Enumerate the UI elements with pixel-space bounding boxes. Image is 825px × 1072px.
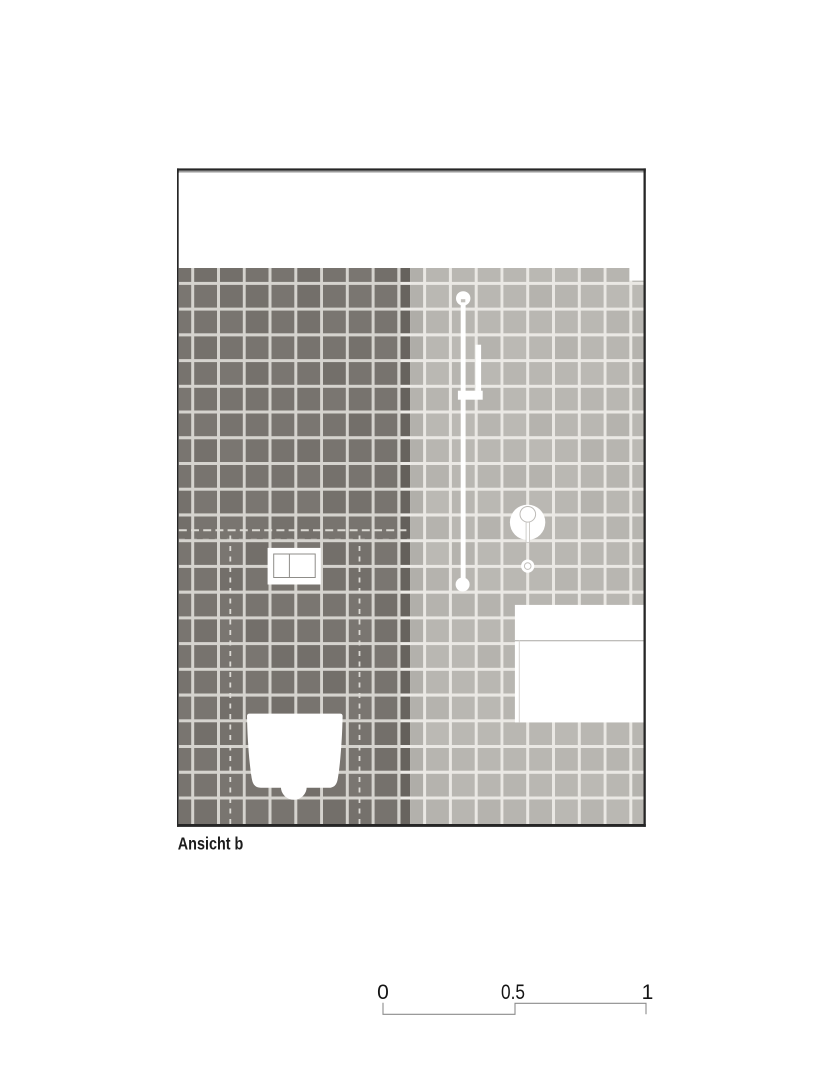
svg-text:Ansicht b: Ansicht b: [178, 834, 244, 854]
svg-text:0: 0: [377, 981, 389, 1004]
svg-text:0.5: 0.5: [501, 981, 525, 1004]
svg-text:1: 1: [642, 981, 654, 1004]
